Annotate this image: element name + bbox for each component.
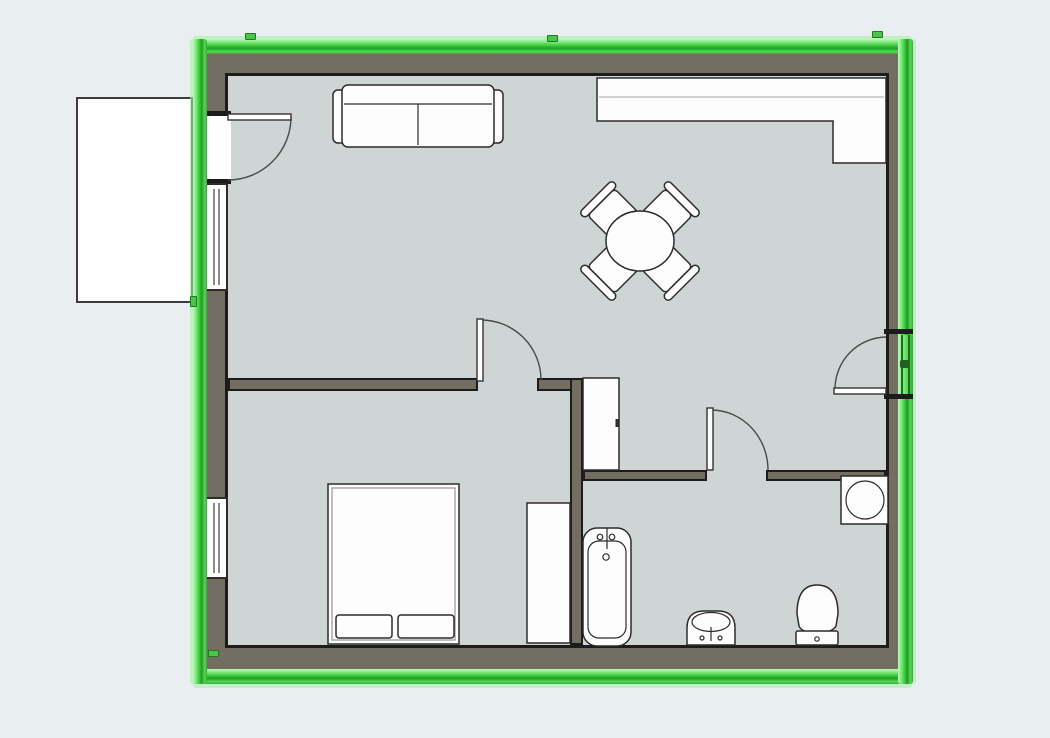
selection-handle[interactable] bbox=[872, 31, 883, 38]
bedroom-window[interactable] bbox=[205, 497, 228, 579]
selection-handle[interactable] bbox=[208, 650, 219, 657]
selected-wall-highlight-left[interactable] bbox=[193, 39, 207, 684]
selection-handle[interactable] bbox=[547, 35, 558, 42]
window-pane-line bbox=[213, 503, 215, 573]
window-pane-line bbox=[213, 189, 215, 285]
partition-wall-living-bedroom[interactable] bbox=[228, 378, 478, 391]
door-jamb bbox=[884, 394, 913, 399]
apartment-floor[interactable] bbox=[225, 73, 889, 648]
partition-wall-living-bathroom-left[interactable] bbox=[583, 470, 707, 481]
door-jamb bbox=[205, 111, 231, 116]
door-jamb bbox=[884, 329, 913, 334]
window-pane-line bbox=[218, 189, 220, 285]
balcony-slab[interactable] bbox=[76, 97, 193, 303]
floorplan-canvas[interactable] bbox=[0, 0, 1050, 738]
selection-handle[interactable] bbox=[245, 33, 256, 40]
balcony-door-handle bbox=[900, 360, 909, 368]
selected-wall-highlight-bottom[interactable] bbox=[193, 669, 912, 684]
entrance-door-opening bbox=[205, 116, 231, 179]
living-room-window[interactable] bbox=[205, 183, 228, 291]
selection-handle[interactable] bbox=[190, 296, 197, 307]
partition-wall-bedroom-bathroom[interactable] bbox=[570, 378, 583, 645]
partition-wall-living-bathroom-right[interactable] bbox=[766, 470, 886, 481]
exterior-wall-bottom[interactable] bbox=[205, 645, 898, 670]
window-pane-line bbox=[218, 503, 220, 573]
